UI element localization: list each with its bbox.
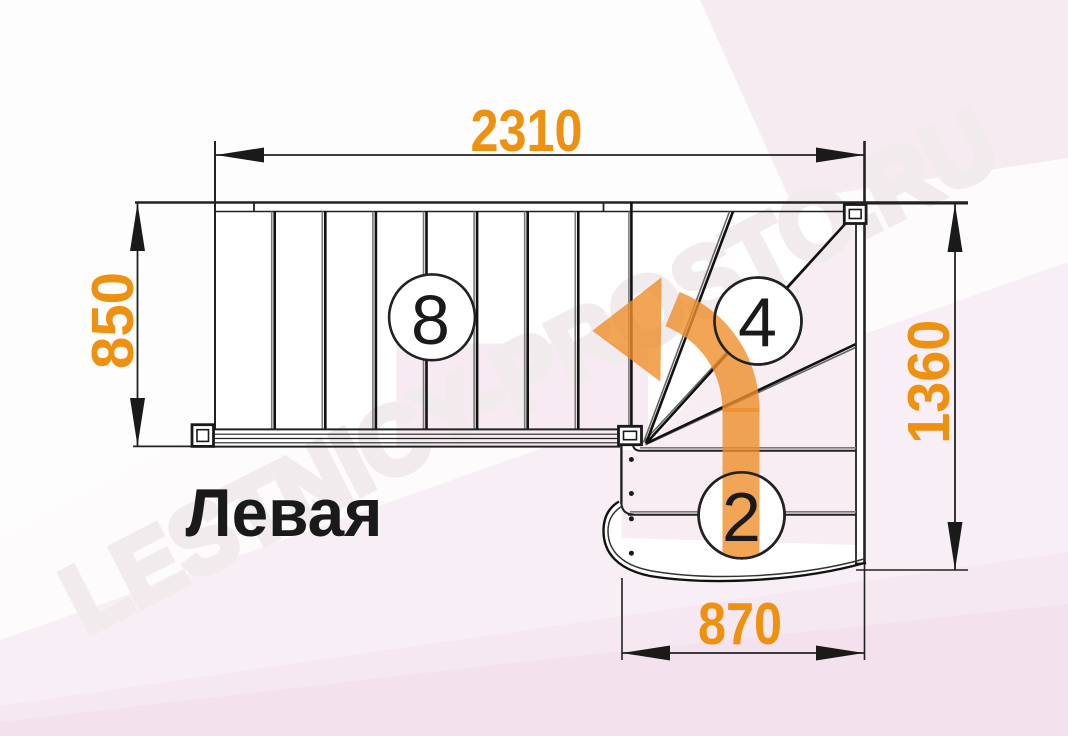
svg-text:8: 8 [411,281,450,359]
svg-text:2: 2 [722,478,761,556]
svg-text:870: 870 [698,591,782,657]
svg-text:850: 850 [80,272,146,369]
svg-text:4: 4 [738,284,777,362]
svg-text:Левая: Левая [186,475,383,551]
svg-text:1360: 1360 [896,320,962,444]
